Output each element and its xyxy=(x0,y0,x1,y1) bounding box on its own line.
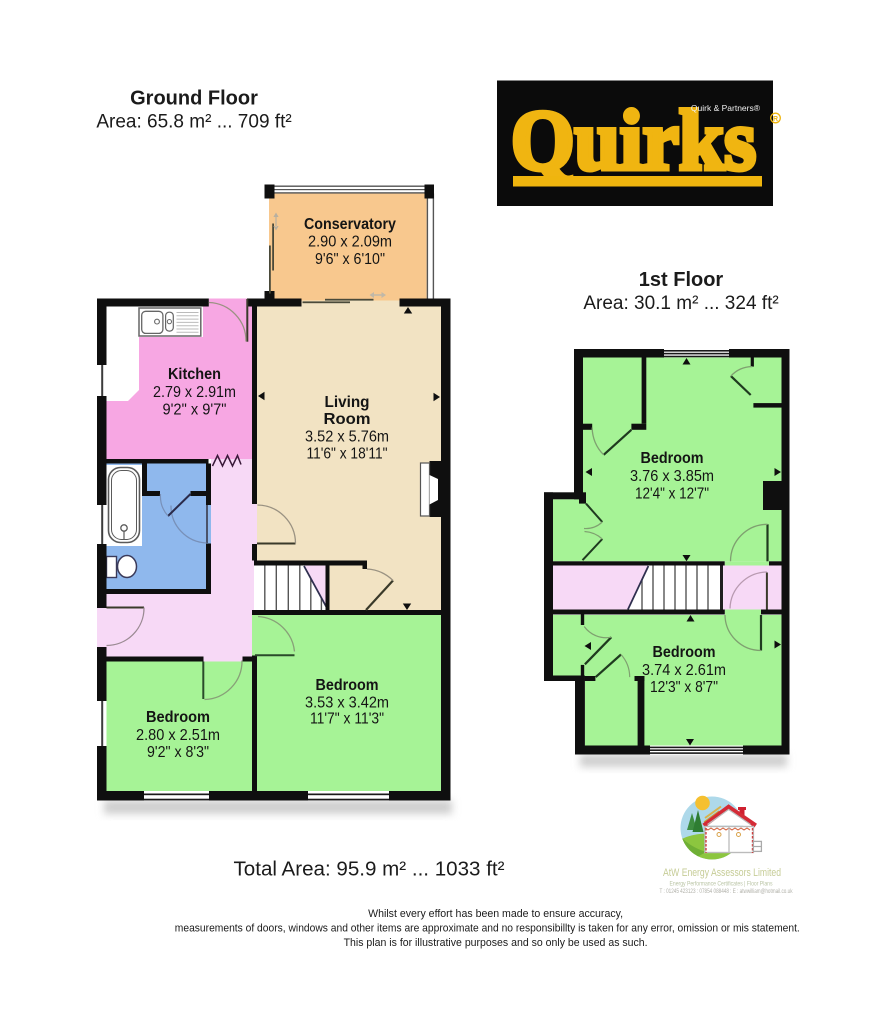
svg-text:2.80 x 2.51m: 2.80 x 2.51m xyxy=(136,727,220,744)
svg-text:Room: Room xyxy=(324,411,371,428)
svg-text:3.52 x 5.76m: 3.52 x 5.76m xyxy=(305,429,389,446)
svg-text:Area: 30.1 m² ... 324 ft²: Area: 30.1 m² ... 324 ft² xyxy=(583,293,778,314)
svg-text:3.53 x 3.42m: 3.53 x 3.42m xyxy=(305,695,389,712)
svg-text:12'3" x 8'7": 12'3" x 8'7" xyxy=(650,679,718,696)
svg-text:Conservatory: Conservatory xyxy=(304,216,396,233)
svg-text:This plan is for illustrative: This plan is for illustrative purposes a… xyxy=(344,937,648,949)
svg-text:3.76 x 3.85m: 3.76 x 3.85m xyxy=(630,468,714,485)
svg-text:Area: 65.8 m² ... 709 ft²: Area: 65.8 m² ... 709 ft² xyxy=(96,112,291,133)
svg-text:T : 01245 423123 : 07854 08844: T : 01245 423123 : 07854 088448 : E : at… xyxy=(660,889,794,895)
svg-text:Living: Living xyxy=(325,394,370,411)
svg-text:AtW Energy Assessors Limited: AtW Energy Assessors Limited xyxy=(663,867,781,879)
svg-text:11'6" x 18'11": 11'6" x 18'11" xyxy=(307,446,388,463)
svg-text:measurements of doors, windows: measurements of doors, windows and other… xyxy=(175,923,800,935)
svg-text:9'2" x 9'7": 9'2" x 9'7" xyxy=(163,402,227,419)
svg-text:11'7" x 11'3": 11'7" x 11'3" xyxy=(310,711,384,728)
svg-text:2.90 x 2.09m: 2.90 x 2.09m xyxy=(308,234,392,251)
svg-text:Whilst every effort has been m: Whilst every effort has been made to ens… xyxy=(368,908,623,920)
svg-text:12'4" x 12'7": 12'4" x 12'7" xyxy=(635,486,709,503)
svg-text:R: R xyxy=(773,116,778,123)
svg-text:Bedroom: Bedroom xyxy=(653,644,716,661)
svg-text:Total Area: 95.9 m² ... 1033 f: Total Area: 95.9 m² ... 1033 ft² xyxy=(234,859,505,881)
svg-text:Quirk & Partners®: Quirk & Partners® xyxy=(691,103,761,113)
svg-text:Bedroom: Bedroom xyxy=(641,450,704,467)
svg-text:Bedroom: Bedroom xyxy=(146,709,210,726)
svg-text:Ground Floor: Ground Floor xyxy=(130,88,258,110)
svg-text:3.74 x 2.61m: 3.74 x 2.61m xyxy=(642,662,726,679)
svg-text:9'6" x 6'10": 9'6" x 6'10" xyxy=(315,251,385,268)
svg-text:Bedroom: Bedroom xyxy=(316,677,379,694)
svg-text:2.79 x 2.91m: 2.79 x 2.91m xyxy=(153,384,236,401)
svg-text:Energy Performance Certificate: Energy Performance Certificates | Floor … xyxy=(670,882,773,888)
svg-text:9'2" x 8'3": 9'2" x 8'3" xyxy=(147,744,209,761)
svg-text:1st Floor: 1st Floor xyxy=(639,269,724,291)
svg-text:Kitchen: Kitchen xyxy=(168,366,221,383)
